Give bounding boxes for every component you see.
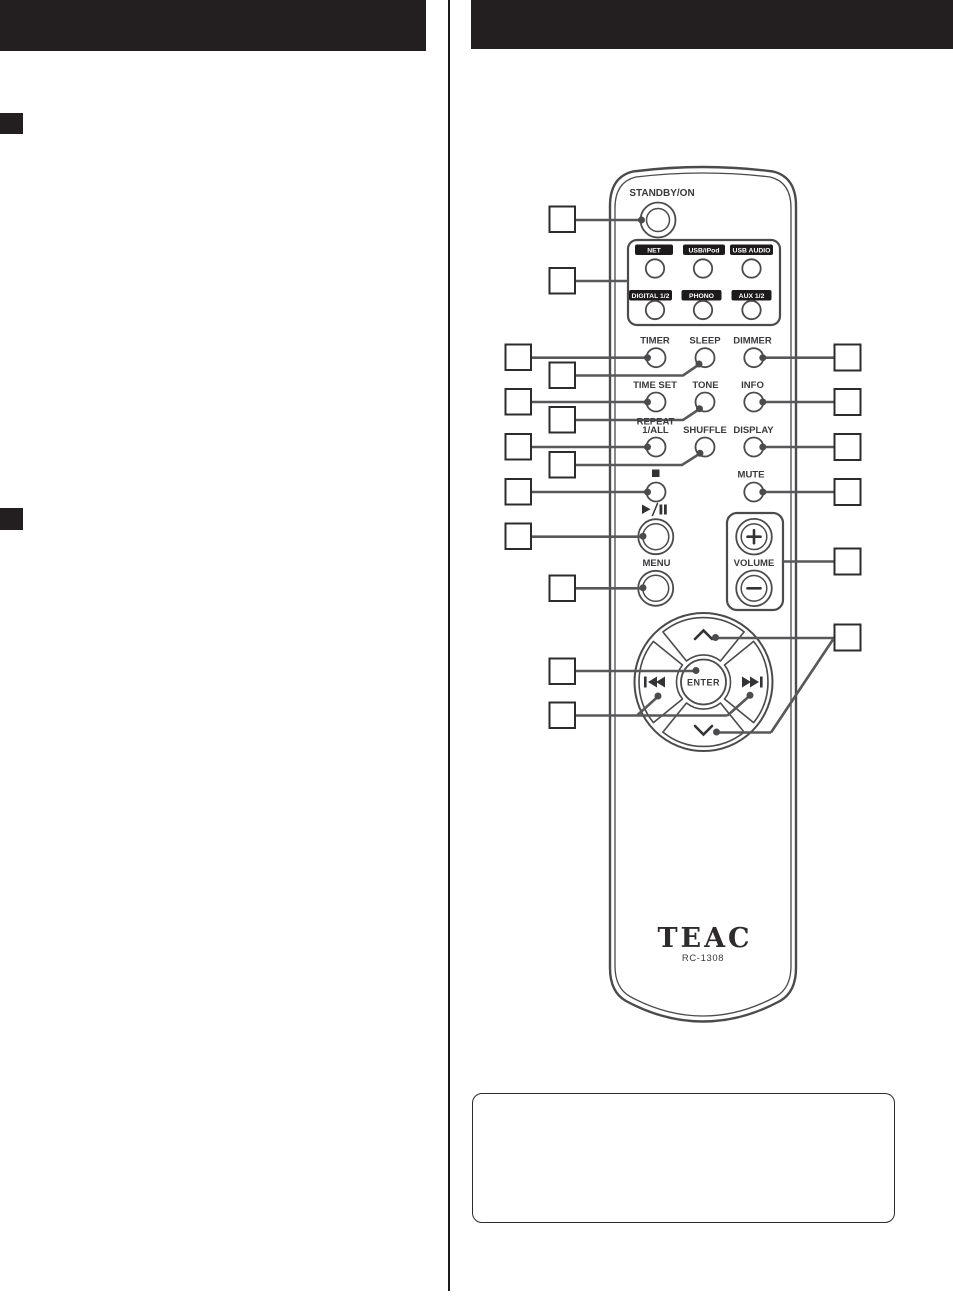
manual-page: STANDBY/ON NET USB/iPod USB AUDIO DIGITA… <box>0 0 953 1298</box>
down-chevron-icon <box>695 726 712 735</box>
tone-label: TONE <box>692 380 718 391</box>
dimmer-label: DIMMER <box>733 336 772 347</box>
callout-box-play-pause <box>506 524 532 550</box>
leader-line <box>575 365 699 376</box>
brand-logo: TEAC <box>657 923 752 954</box>
play-pause-icon <box>642 504 667 516</box>
skip-forward-icon <box>742 677 763 688</box>
aux-label: AUX 1/2 <box>739 293 765 300</box>
callout-box-display <box>835 434 861 460</box>
standby-label: STANDBY/ON <box>629 188 694 199</box>
page-edge-tab <box>0 508 23 530</box>
display-label: DISPLAY <box>733 425 774 436</box>
model-number: RC-1308 <box>682 953 724 964</box>
up-chevron-icon <box>695 631 712 640</box>
usb-audio-label: USB AUDIO <box>733 248 771 255</box>
mute-label: MUTE <box>738 470 765 481</box>
sleep-label: SLEEP <box>689 336 721 347</box>
usb-ipod-button <box>694 259 712 277</box>
phono-label: PHONO <box>689 293 714 300</box>
volume-label: VOLUME <box>734 558 775 569</box>
column-divider <box>448 0 450 1291</box>
stop-icon <box>652 470 660 478</box>
skip-back-icon <box>644 677 665 688</box>
enter-label: ENTER <box>687 678 720 688</box>
remote-control-figure: STANDBY/ON NET USB/iPod USB AUDIO DIGITA… <box>490 150 872 1050</box>
menu-label: MENU <box>643 558 671 569</box>
info-label: INFO <box>741 380 764 391</box>
right-column-header-bar <box>471 0 953 49</box>
digital-label: DIGITAL 1/2 <box>632 293 670 300</box>
callout-box-skip <box>550 703 576 729</box>
phono-button <box>694 301 712 319</box>
usb-audio-button <box>742 259 760 277</box>
callout-box-mute <box>835 479 861 505</box>
aux-button <box>742 301 760 319</box>
repeat-label-line2: 1/ALL <box>642 425 669 436</box>
callout-box-tone <box>550 407 576 433</box>
callout-box-standby <box>550 207 576 233</box>
callout-box-enter <box>550 659 576 685</box>
callout-box-stop <box>506 479 532 505</box>
callout-box-up-down <box>835 625 861 651</box>
digital-button <box>646 301 664 319</box>
callout-box-repeat <box>506 434 532 460</box>
callout-box-shuffle <box>550 452 576 478</box>
leader-line <box>575 454 700 466</box>
shuffle-label: SHUFFLE <box>683 425 727 436</box>
callout-box-info <box>835 389 861 415</box>
page-edge-tab <box>0 113 23 134</box>
timer-label: TIMER <box>640 336 670 347</box>
callout-box-sources <box>550 268 576 294</box>
left-column-header-bar <box>0 0 426 51</box>
callout-box-volume <box>835 549 861 575</box>
callout-box-time-set <box>506 389 532 415</box>
note-box <box>472 1093 895 1223</box>
time-set-label: TIME SET <box>633 380 677 391</box>
callout-box-dimmer <box>835 345 861 371</box>
usb-ipod-label: USB/iPod <box>689 248 720 255</box>
net-button <box>646 259 664 277</box>
down-button <box>663 703 744 746</box>
callout-box-timer <box>506 345 532 371</box>
callout-box-menu <box>550 576 576 602</box>
net-label: NET <box>647 248 661 255</box>
callout-box-sleep <box>550 363 576 389</box>
leader-line <box>575 696 750 716</box>
